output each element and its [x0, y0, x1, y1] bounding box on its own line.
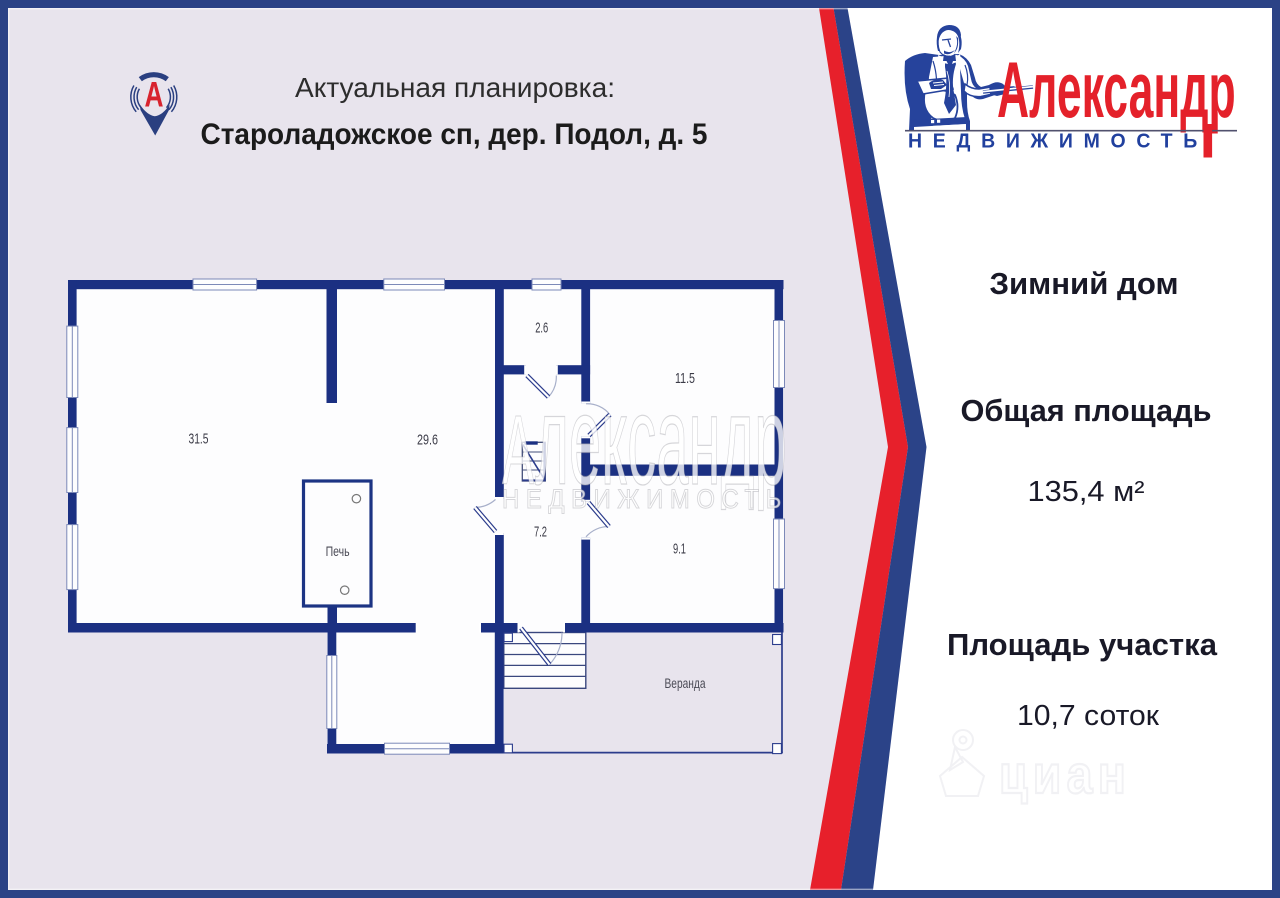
- svg-text:Общая площадь: Общая площадь: [961, 393, 1212, 428]
- svg-text:7.2: 7.2: [534, 524, 547, 541]
- svg-text:9.1: 9.1: [673, 541, 686, 558]
- svg-text:2.6: 2.6: [535, 320, 548, 337]
- svg-text:Площадь участка: Площадь участка: [947, 627, 1218, 662]
- svg-text:НЕДВИЖИМОСТЬ: НЕДВИЖИМОСТЬ: [908, 131, 1208, 153]
- svg-text:10,7 соток: 10,7 соток: [1017, 700, 1159, 732]
- svg-text:Староладожское сп, дер. Подол,: Староладожское сп, дер. Подол, д. 5: [201, 118, 708, 151]
- svg-text:Зимний дом: Зимний дом: [990, 266, 1179, 301]
- svg-text:29.6: 29.6: [417, 432, 438, 449]
- svg-text:Александр: Александр: [997, 46, 1236, 134]
- svg-text:Печь: Печь: [326, 544, 350, 559]
- svg-text:135,4 м²: 135,4 м²: [1028, 476, 1145, 508]
- svg-text:НЕДВИЖИМОСТЬ: НЕДВИЖИМОСТЬ: [502, 484, 788, 514]
- svg-text:31.5: 31.5: [189, 431, 209, 448]
- svg-text:А: А: [145, 76, 164, 115]
- svg-text:циан: циан: [999, 745, 1131, 805]
- svg-text:Актуальная планировка:: Актуальная планировка:: [295, 72, 615, 103]
- svg-text:Веранда: Веранда: [665, 675, 706, 691]
